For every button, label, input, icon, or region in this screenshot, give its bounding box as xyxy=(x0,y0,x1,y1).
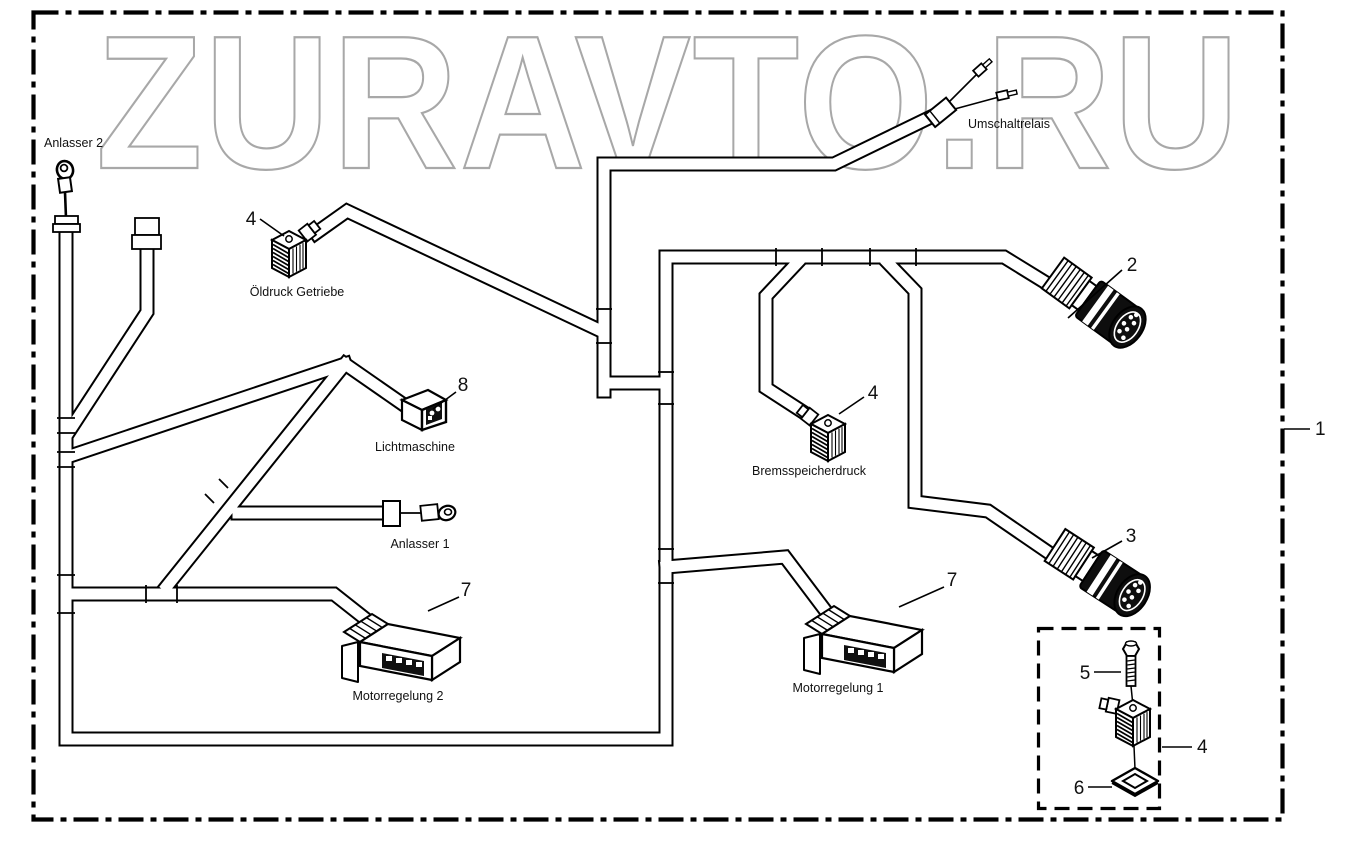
motorregelung2-connector xyxy=(342,614,460,682)
callout-1: 1 xyxy=(1315,419,1326,440)
round-connector-3 xyxy=(1042,526,1157,623)
label-anlasser2: Anlasser 2 xyxy=(44,136,103,150)
label-motorregelung1: Motorregelung 1 xyxy=(792,681,883,695)
bremsspeicherdruck-valve-connector xyxy=(796,403,845,461)
lichtmaschine-connector xyxy=(402,390,446,430)
label-lichtmaschine: Lichtmaschine xyxy=(375,440,455,454)
callout-4-oeldruck: 4 xyxy=(246,209,257,230)
callout-7-motorregelung1: 7 xyxy=(947,570,958,591)
label-anlasser1: Anlasser 1 xyxy=(390,537,449,551)
callout-7-motorregelung2: 7 xyxy=(461,580,472,601)
anlasser2-terminal xyxy=(53,159,80,232)
watermark-text: ZURAVTO.RU xyxy=(96,0,1241,209)
anlasser1-terminal xyxy=(383,501,457,526)
label-oeldruck-getriebe: Öldruck Getriebe xyxy=(250,285,345,299)
kit-axis-line xyxy=(1134,746,1135,769)
callout-3: 3 xyxy=(1126,526,1137,547)
oeldruck-valve-connector xyxy=(272,219,321,277)
callout-8: 8 xyxy=(458,375,469,396)
label-bremsspeicherdruck: Bremsspeicherdruck xyxy=(752,464,867,478)
branch-end-cap xyxy=(132,218,161,249)
screw xyxy=(1123,641,1139,686)
callout-2: 2 xyxy=(1127,255,1138,276)
callout-6: 6 xyxy=(1074,778,1085,799)
seal-gasket xyxy=(1112,768,1158,796)
motorregelung1-connector xyxy=(804,606,922,674)
label-motorregelung2: Motorregelung 2 xyxy=(352,689,443,703)
kit-axis-line xyxy=(1131,686,1133,701)
callout-5: 5 xyxy=(1080,663,1091,684)
callout-4-brems: 4 xyxy=(868,383,879,404)
kit-valve-connector xyxy=(1099,696,1150,746)
wiring-harness-parts-diagram: ZURAVTO.RU xyxy=(0,0,1359,843)
callout-4-kit: 4 xyxy=(1197,737,1208,758)
callout-numbers: 1 2 3 4 4 4 5 6 7 7 8 xyxy=(246,209,1326,799)
label-umschaltrelais: Umschaltrelais xyxy=(968,117,1050,131)
